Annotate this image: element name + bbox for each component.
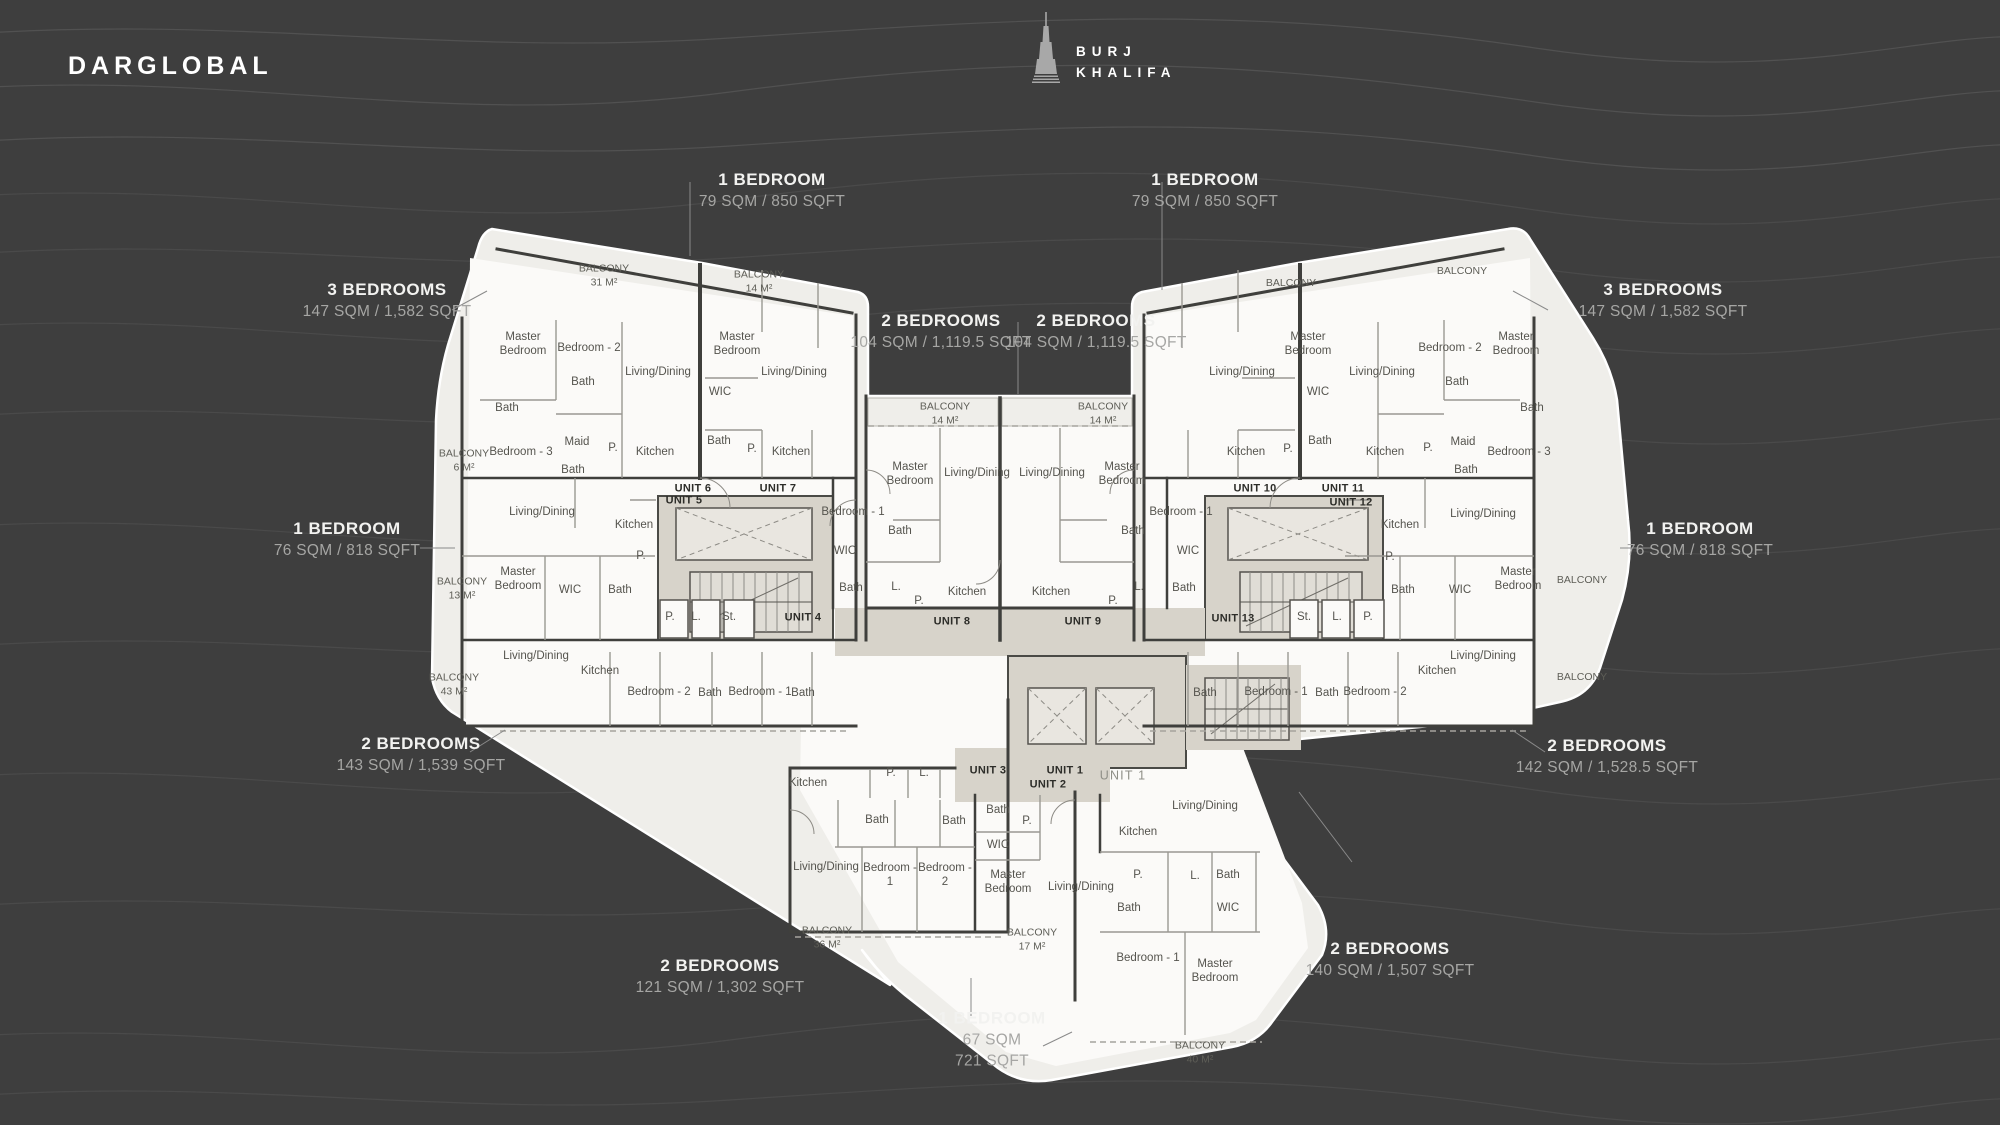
room-label: Living/Dining	[509, 505, 575, 519]
room-label: Bath	[865, 813, 889, 827]
room-label: Living/Dining	[761, 365, 827, 379]
room-label: Kitchen	[1227, 445, 1265, 459]
unit-tag: UNIT 10	[1233, 482, 1276, 495]
unit-tag: UNIT 11	[1322, 482, 1364, 495]
room-label: Living/Dining	[1048, 880, 1108, 894]
room-label: P.	[1363, 610, 1372, 624]
unit-callout-title: 2 BEDROOMS	[636, 956, 805, 977]
room-label: WIC	[1217, 901, 1239, 915]
unit-callout: 1 BEDROOM67 SQM721 SQFT	[938, 1009, 1045, 1072]
unit-tag: UNIT 9	[1065, 615, 1102, 628]
room-label: L.	[1134, 580, 1144, 594]
room-label: Kitchen	[615, 518, 653, 532]
room-label: Kitchen	[948, 585, 986, 599]
balcony-label: BALCONY31 M²	[579, 262, 629, 289]
room-label: Bedroom - 1	[728, 685, 791, 699]
unit-tag: UNIT 1	[1100, 768, 1147, 783]
room-label: P.	[747, 442, 756, 456]
room-label: Bedroom - 2	[557, 341, 620, 355]
room-label: Bath	[1315, 686, 1339, 700]
unit-callout-title: 1 BEDROOM	[1132, 170, 1278, 191]
balcony-name: BALCONY	[429, 671, 479, 685]
balcony-label: BALCONY36 M²	[802, 924, 852, 951]
balcony-size: 13 M²	[437, 589, 487, 603]
balcony-label: BALCONY	[1437, 265, 1487, 279]
room-label: Bedroom - 1	[1116, 951, 1179, 965]
balcony-name: BALCONY	[579, 262, 629, 276]
room-label: Living/Dining	[1019, 466, 1085, 480]
unit-callout-area: 147 SQM / 1,582 SQFT	[1579, 303, 1748, 322]
balcony-label: BALCONY40 M²	[1175, 1039, 1225, 1066]
room-label: Bath	[1117, 901, 1141, 915]
unit-callout: 1 BEDROOM79 SQM / 850 SQFT	[1132, 170, 1278, 212]
room-label: Maid	[1451, 435, 1476, 449]
unit-tag: UNIT 8	[934, 615, 971, 628]
room-label: Bedroom - 2	[627, 685, 690, 699]
room-label: L.	[691, 610, 701, 624]
balcony-label: BALCONY14 M²	[1078, 400, 1128, 427]
balcony-label: BALCONY6 M²	[439, 447, 489, 474]
room-label: WIC	[1307, 385, 1329, 399]
room-label: Bath	[1121, 524, 1145, 538]
unit-callout-title: 1 BEDROOM	[938, 1009, 1045, 1030]
unit-callout-area: 142 SQM / 1,528.5 SQFT	[1516, 759, 1698, 778]
balcony-name: BALCONY	[802, 924, 852, 938]
balcony-name: BALCONY	[1266, 277, 1316, 291]
balcony-size: 36 M²	[802, 938, 852, 952]
room-label: Bath	[698, 686, 722, 700]
room-label: Kitchen	[772, 445, 810, 459]
room-label: Master Bedroom	[1485, 330, 1547, 358]
room-label: Bedroom - 2	[916, 861, 974, 889]
unit-callout-title: 2 BEDROOMS	[1516, 736, 1698, 757]
unit-callout-title: 1 BEDROOM	[274, 519, 420, 540]
room-label: Kitchen	[1381, 518, 1419, 532]
room-label: Living/Dining	[625, 365, 691, 379]
room-label: Bedroom - 3	[1487, 445, 1550, 459]
room-label: Master Bedroom	[879, 460, 941, 488]
room-label: L.	[1190, 869, 1200, 883]
unit-callout-title: 2 BEDROOMS	[1306, 939, 1475, 960]
room-label: P.	[886, 766, 895, 780]
unit-callout-area2: 721 SQFT	[938, 1052, 1045, 1071]
balcony-name: BALCONY	[920, 400, 970, 414]
unit-callout-area: 76 SQM / 818 SQFT	[274, 542, 420, 561]
room-label: P.	[608, 441, 617, 455]
unit-callout-title: 2 BEDROOMS	[337, 734, 506, 755]
room-label: Maid	[565, 435, 590, 449]
unit-callout-area: 147 SQM / 1,582 SQFT	[303, 303, 472, 322]
unit-tag: UNIT 13	[1211, 612, 1254, 625]
room-label: WIC	[559, 583, 581, 597]
balcony-size: 6 M²	[439, 461, 489, 475]
unit-callout: 1 BEDROOM76 SQM / 818 SQFT	[274, 519, 420, 561]
unit-callout: 1 BEDROOM79 SQM / 850 SQFT	[699, 170, 845, 212]
unit-callout: 2 BEDROOMS121 SQM / 1,302 SQFT	[636, 956, 805, 998]
room-label: L.	[1332, 610, 1342, 624]
room-label: Living/Dining	[1172, 799, 1238, 813]
balcony-label: BALCONY	[1557, 671, 1607, 685]
unit-tag: UNIT 1	[1047, 764, 1084, 777]
room-label: Bedroom - 1	[1244, 685, 1307, 699]
room-label: Bath	[1172, 581, 1196, 595]
room-label: P.	[1283, 442, 1292, 456]
balcony-label: BALCONY14 M²	[734, 268, 784, 295]
room-label: P.	[1022, 814, 1031, 828]
room-label: Bedroom - 2	[1343, 685, 1406, 699]
room-label: Master Bedroom	[1091, 460, 1153, 488]
unit-callout: 2 BEDROOMS104 SQM / 1,119.5 SQFT	[1005, 311, 1186, 353]
room-label: Bath	[608, 583, 632, 597]
balcony-name: BALCONY	[1437, 265, 1487, 279]
unit-callout-area: 79 SQM / 850 SQFT	[699, 193, 845, 212]
unit-callout-title: 2 BEDROOMS	[1005, 311, 1186, 332]
room-label: Bath	[571, 375, 595, 389]
room-label: Living/Dining	[944, 466, 1010, 480]
balcony-size: 14 M²	[1078, 414, 1128, 428]
unit-callout: 3 BEDROOMS147 SQM / 1,582 SQFT	[1579, 280, 1748, 322]
room-label: Bath	[707, 434, 731, 448]
room-label: Kitchen	[1418, 664, 1456, 678]
unit-tag: UNIT 12	[1329, 496, 1372, 509]
room-label: P.	[636, 549, 645, 563]
unit-callout-title: 1 BEDROOM	[699, 170, 845, 191]
balcony-size: 40 M²	[1175, 1053, 1225, 1067]
room-label: P.	[1108, 594, 1117, 608]
room-label: P.	[1423, 441, 1432, 455]
balcony-name: BALCONY	[1007, 926, 1057, 940]
balcony-name: BALCONY	[1557, 574, 1607, 588]
room-label: Bath	[791, 686, 815, 700]
balcony-size: 14 M²	[920, 414, 970, 428]
room-label: Living/Dining	[1450, 507, 1516, 521]
room-label: Master Bedroom	[492, 330, 554, 358]
balcony-size: 43 M²	[429, 685, 479, 699]
balcony-name: BALCONY	[734, 268, 784, 282]
unit-callout-title: 1 BEDROOM	[1627, 519, 1773, 540]
balcony-name: BALCONY	[1078, 400, 1128, 414]
room-label: Living/Dining	[503, 649, 569, 663]
unit-tag: UNIT 7	[760, 482, 797, 495]
room-label: Living/Dining	[793, 860, 859, 874]
room-label: Living/Dining	[1450, 649, 1516, 663]
unit-callout-area: 67 SQM	[938, 1031, 1045, 1050]
unit-callout: 2 BEDROOMS140 SQM / 1,507 SQFT	[1306, 939, 1475, 981]
room-label: Bedroom - 1	[1149, 505, 1212, 519]
unit-tag: UNIT 4	[785, 611, 822, 624]
room-label: Bath	[1216, 868, 1240, 882]
room-label: Kitchen	[636, 445, 674, 459]
balcony-name: BALCONY	[1175, 1039, 1225, 1053]
room-label: Living/Dining	[1349, 365, 1415, 379]
unit-tag: UNIT 5	[666, 494, 703, 507]
room-label: Bath	[839, 581, 863, 595]
room-label: Bath	[942, 814, 966, 828]
unit-callout-area: 79 SQM / 850 SQFT	[1132, 193, 1278, 212]
unit-callout-area: 76 SQM / 818 SQFT	[1627, 542, 1773, 561]
plan-labels-layer: 1 BEDROOM79 SQM / 850 SQFT1 BEDROOM79 SQ…	[0, 0, 2000, 1125]
unit-callout: 2 BEDROOMS143 SQM / 1,539 SQFT	[337, 734, 506, 776]
room-label: Kitchen	[1366, 445, 1404, 459]
balcony-label: BALCONY	[1557, 574, 1607, 588]
room-label: Bath	[1445, 375, 1469, 389]
unit-callout-title: 3 BEDROOMS	[303, 280, 472, 301]
room-label: Master Bedroom	[1184, 957, 1246, 985]
room-label: L.	[919, 766, 929, 780]
room-label: Bath	[888, 524, 912, 538]
room-label: P.	[1133, 868, 1142, 882]
room-label: Kitchen	[1032, 585, 1070, 599]
room-label: Bath	[495, 401, 519, 415]
room-label: Kitchen	[789, 776, 827, 790]
room-label: Living/Dining	[1209, 365, 1275, 379]
room-label: Bath	[1193, 686, 1217, 700]
room-label: Kitchen	[1119, 825, 1157, 839]
room-label: P.	[1385, 550, 1394, 564]
room-label: P.	[665, 610, 674, 624]
balcony-label: BALCONY43 M²	[429, 671, 479, 698]
room-label: Kitchen	[581, 664, 619, 678]
balcony-label: BALCONY13 M²	[437, 575, 487, 602]
unit-callout-title: 3 BEDROOMS	[1579, 280, 1748, 301]
room-label: Bath	[1391, 583, 1415, 597]
room-label: WIC	[1449, 583, 1471, 597]
room-label: Bath	[1454, 463, 1478, 477]
room-label: Master Bedroom	[1487, 565, 1549, 593]
unit-callout-area: 140 SQM / 1,507 SQFT	[1306, 962, 1475, 981]
balcony-size: 31 M²	[579, 276, 629, 290]
room-label: WIC	[709, 385, 731, 399]
unit-tag: UNIT 3	[970, 764, 1007, 777]
balcony-size: 17 M²	[1007, 940, 1057, 954]
floor-plan-page: DARGLOBAL BURJ KHALIFA DUBAI CANAL 1 BED…	[0, 0, 2000, 1125]
room-label: P.	[914, 594, 923, 608]
balcony-name: BALCONY	[437, 575, 487, 589]
balcony-name: BALCONY	[1557, 671, 1607, 685]
balcony-size: 14 M²	[734, 282, 784, 296]
room-label: Bath	[1520, 401, 1544, 415]
unit-callout-area: 104 SQM / 1,119.5 SQFT	[1005, 334, 1186, 353]
balcony-name: BALCONY	[439, 447, 489, 461]
room-label: WIC	[987, 838, 1009, 852]
room-label: Bedroom - 1	[861, 861, 919, 889]
room-label: St.	[1297, 610, 1311, 624]
unit-callout: 3 BEDROOMS147 SQM / 1,582 SQFT	[303, 280, 472, 322]
room-label: Bath	[986, 803, 1010, 817]
unit-callout: 2 BEDROOMS142 SQM / 1,528.5 SQFT	[1516, 736, 1698, 778]
unit-callout-area: 143 SQM / 1,539 SQFT	[337, 757, 506, 776]
balcony-label: BALCONY	[1266, 277, 1316, 291]
room-label: Bath	[561, 463, 585, 477]
room-label: Bedroom - 2	[1418, 341, 1481, 355]
unit-tag: UNIT 2	[1030, 778, 1067, 791]
balcony-label: BALCONY17 M²	[1007, 926, 1057, 953]
unit-callout: 1 BEDROOM76 SQM / 818 SQFT	[1627, 519, 1773, 561]
room-label: Master Bedroom	[977, 868, 1039, 896]
unit-callout-area: 121 SQM / 1,302 SQFT	[636, 979, 805, 998]
room-label: Master Bedroom	[706, 330, 768, 358]
balcony-label: BALCONY14 M²	[920, 400, 970, 427]
room-label: WIC	[834, 544, 856, 558]
room-label: Bedroom - 3	[489, 445, 552, 459]
room-label: Master Bedroom	[487, 565, 549, 593]
room-label: WIC	[1177, 544, 1199, 558]
room-label: Master Bedroom	[1277, 330, 1339, 358]
room-label: Bedroom - 1	[821, 505, 884, 519]
room-label: Bath	[1308, 434, 1332, 448]
room-label: L.	[891, 580, 901, 594]
room-label: St.	[722, 610, 736, 624]
